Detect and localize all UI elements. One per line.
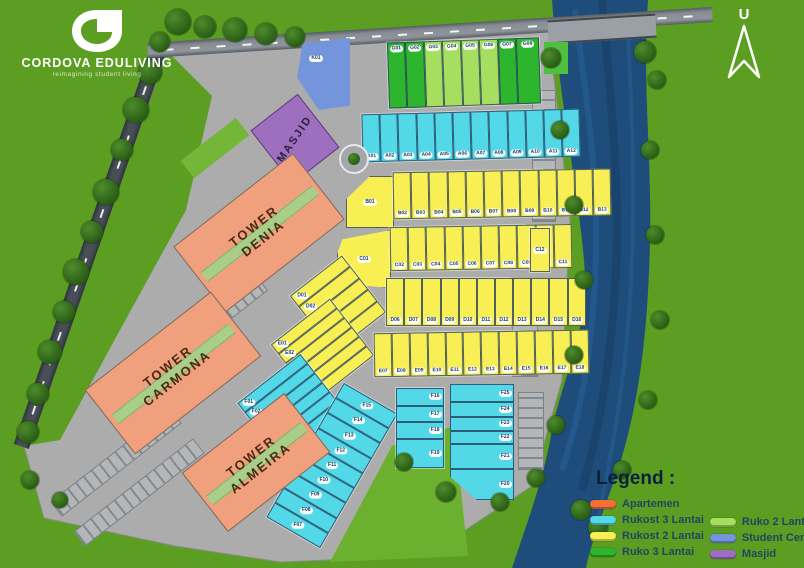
tree-icon [395,453,413,471]
tree-icon [17,421,39,443]
unit-label: B10 [541,207,554,214]
legend-label: Rukost 3 Lantai [622,514,704,526]
unit-label: E16 [538,365,551,372]
tree-icon [21,471,39,489]
unit-E14[interactable]: E14 [499,331,518,375]
unit-label: D11 [479,317,492,324]
rukost-f-col2: F25F24F23F22F21F20 [450,384,514,500]
north-arrow-icon [724,23,764,81]
legend-swatch-icon [710,534,736,543]
unit-label: D13 [516,317,529,324]
rukost-e-row: E07E08E09E10E11E12E13E14E15E16E17E18 [374,331,521,378]
unit-label: F24 [499,406,512,413]
unit-C06[interactable]: C06 [462,226,481,270]
unit-label: E18 [573,364,586,371]
unit-A02[interactable]: A02 [380,113,399,161]
unit-label: E12 [466,366,479,373]
unit-F21[interactable]: F21 [450,444,514,469]
unit-label: B02 [396,210,409,217]
tree-icon [38,340,62,364]
unit-C04[interactable]: C04 [426,226,445,270]
unit-A09[interactable]: A09 [507,110,526,158]
unit-label: B08 [505,208,518,215]
unit-label: A08 [492,149,505,156]
unit-label: C01 [357,256,370,263]
unit-B02[interactable]: B02 [393,172,412,219]
unit-label: B01 [363,199,376,206]
unit-label: E09 [413,367,426,374]
legend-swatch-icon [590,500,616,509]
unit-label: A06 [456,150,469,157]
unit-A03[interactable]: A03 [398,113,417,161]
tree-icon [81,221,103,243]
unit-E15[interactable]: E15 [517,330,536,374]
tree-icon [194,16,216,38]
legend-title: Legend : [596,468,802,490]
unit-label: C04 [429,261,442,268]
unit-B07[interactable]: B07 [484,170,503,217]
legend-swatch-icon [590,548,616,557]
tree-icon [648,71,666,89]
tower-label: TOWER CARMONA [132,336,215,410]
legend-swatch-icon [710,550,736,559]
unit-E13[interactable]: E13 [481,331,500,375]
unit-label: E07 [377,368,390,375]
unit-label: B07 [487,208,500,215]
unit-label: E08 [395,367,408,374]
brand-tagline: reimagining student living [12,71,182,78]
unit-label: F17 [429,411,442,418]
unit-label: E13 [484,366,497,373]
legend-item: Rukost 3 Lantai [590,514,704,526]
tree-icon [571,500,591,520]
unit-label: E10 [430,367,443,374]
unit-label: G08 [521,40,535,47]
unit-label: F13 [343,432,356,439]
legend-label: Student Center [742,532,804,544]
legend: Legend : ApartemenRukost 3 LantaiRukost … [590,468,802,560]
unit-label: E11 [448,366,461,373]
unit-label: C05 [447,260,460,267]
unit-label: F01 [242,399,255,406]
unit-label: G02 [408,44,422,51]
roundabout [339,144,369,174]
legend-label: Rukost 2 Lantai [622,530,704,542]
unit-label: F11 [326,462,338,469]
unit-F17[interactable]: F17 [396,406,444,422]
rukost-c-row: C02C03C04C05C06C07C08C09C10C11 [390,225,526,271]
unit-E07[interactable]: E07 [374,333,393,377]
tree-icon [223,18,247,42]
parking-strip [518,392,544,470]
tree-icon [63,259,89,285]
unit-A10[interactable]: A10 [525,110,544,158]
unit-label: F10 [317,477,330,484]
legend-swatch-icon [590,532,616,541]
unit-label: D16 [570,317,583,324]
tree-icon [551,121,569,139]
unit-label: F20 [499,481,512,488]
unit-label: F25 [499,390,512,397]
unit-label: D10 [461,317,474,324]
unit-label: C08 [502,259,515,266]
tree-icon [52,492,68,508]
legend-item: Rukost 2 Lantai [590,530,704,542]
unit-G07[interactable]: G07 [498,38,519,105]
unit-D06[interactable]: D06 [386,278,404,326]
unit-label: E02 [282,350,295,357]
unit-F25[interactable]: F25 [450,384,514,402]
legend-item: Ruko 3 Lantai [590,546,704,558]
unit-E16[interactable]: E16 [534,330,553,374]
tree-icon [285,27,305,47]
unit-D14[interactable]: D14 [531,278,549,326]
compass-label: U [722,6,766,23]
tree-icon [565,196,583,214]
unit-F22[interactable]: F22 [450,431,514,444]
unit-label: G07 [500,41,514,48]
tree-icon [646,226,664,244]
unit-D13[interactable]: D13 [513,278,531,326]
tree-icon [123,97,149,123]
legend-label: Ruko 3 Lantai [622,546,694,558]
tree-icon [491,493,509,511]
unit-label: D09 [443,317,456,324]
unit-D09[interactable]: D09 [441,278,459,326]
unit-label: B06 [468,208,481,215]
unit-label: G01 [389,45,403,52]
unit-label: F15 [360,402,373,409]
unit-G06[interactable]: G06 [479,39,500,106]
tree-icon [527,469,545,487]
tree-icon [575,271,593,289]
unit-E11[interactable]: E11 [445,332,463,376]
unit-label: E17 [555,364,568,371]
unit-C11[interactable]: C11 [553,224,572,268]
unit-A07[interactable]: A07 [470,111,489,159]
tree-icon [641,141,659,159]
unit-label: F12 [334,447,347,454]
unit-label: F09 [308,492,321,499]
unit-label: K01 [309,55,322,62]
unit-G04[interactable]: G04 [442,40,463,107]
tree-icon [547,416,565,434]
unit-label: F19 [429,450,442,457]
unit-B08[interactable]: B08 [502,170,521,217]
unit-label: D07 [407,317,420,324]
tree-icon [93,179,119,205]
unit-A05[interactable]: A05 [434,112,453,160]
unit-D10[interactable]: D10 [459,278,477,326]
legend-column: Ruko 2 LantaiStudent CenterMasjid [710,516,804,560]
unit-label: G05 [463,42,477,49]
unit-label: F08 [300,507,313,514]
unit-G02[interactable]: G02 [405,41,426,108]
tree-icon [53,301,75,323]
unit-label: F23 [499,420,512,427]
unit-label: C12 [533,247,546,254]
unit-label: E14 [502,365,515,372]
unit-label: A03 [401,152,414,159]
unit-label: C06 [465,260,478,267]
tree-icon [541,48,561,68]
unit-label: A07 [474,150,487,157]
rukost-d-row: D06D07D08D09D10D11D12D13D14D15D16 [386,278,510,326]
unit-label: D08 [425,317,438,324]
brand-logo-icon [68,8,126,54]
unit-label: B13 [596,206,609,213]
unit-label: A10 [529,148,542,155]
unit-label: C02 [393,261,406,268]
unit-A04[interactable]: A04 [416,112,435,160]
unit-C08[interactable]: C08 [499,225,518,269]
unit-G01[interactable]: G01 [387,42,408,109]
unit-label: G06 [482,41,496,48]
unit-D08[interactable]: D08 [422,278,440,326]
unit-B13[interactable]: B13 [592,169,611,216]
rukost-b-row: B02B03B04B05B06B07B08B09B10B11B12B13 [393,170,544,220]
unit-F16[interactable]: F16 [396,388,444,406]
unit-label: F21 [499,453,512,460]
unit-label: A12 [565,147,578,154]
unit-label: E01 [275,340,288,347]
legend-item: Masjid [710,548,804,560]
unit-label: A05 [438,151,451,158]
brand-name: CORDOVA EDULIVING [12,56,182,70]
tree-icon [27,383,49,405]
unit-B05[interactable]: B05 [447,171,466,218]
tree-icon [111,139,133,161]
unit-E08[interactable]: E08 [392,333,411,377]
unit-label: G04 [445,43,459,50]
legend-item: Student Center [710,532,804,544]
unit-D07[interactable]: D07 [404,278,422,326]
unit-A08[interactable]: A08 [489,111,508,159]
unit-G05[interactable]: G05 [461,39,482,106]
unit-label: B09 [523,207,536,214]
unit-B09[interactable]: B09 [520,170,539,217]
unit-label: F22 [499,434,512,441]
tree-icon [255,23,277,45]
unit-D12[interactable]: D12 [495,278,513,326]
unit-D11[interactable]: D11 [477,278,495,326]
unit-label: D12 [497,317,510,324]
legend-column: ApartemenRukost 3 LantaiRukost 2 LantaiR… [590,498,704,560]
unit-G03[interactable]: G03 [424,41,445,108]
unit-E09[interactable]: E09 [409,332,428,376]
unit-label: A11 [547,148,560,155]
legend-label: Apartemen [622,498,679,510]
unit-label: G03 [426,43,440,50]
tower-label: TOWER ALMEIRA [218,428,294,497]
ruko-top-row: G01G02G03G04G05G06G07G08 [387,37,541,108]
unit-G08[interactable]: G08 [516,37,541,104]
unit-B04[interactable]: B04 [429,171,448,218]
unit-label: F16 [429,393,442,400]
unit-label: E15 [520,365,533,372]
compass: U [722,6,766,86]
unit-F18[interactable]: F18 [396,422,444,438]
unit-label: F14 [352,417,365,424]
site-plan-canvas: G01G02G03G04G05G06G07G08 A01A02A03A04A05… [0,0,804,568]
unit-label: B03 [414,209,427,216]
unit-label: C11 [556,259,569,266]
unit-A06[interactable]: A06 [452,112,471,160]
unit-label: B04 [432,209,445,216]
unit-label: A04 [419,151,432,158]
unit-C02[interactable]: C02 [390,227,409,271]
unit-label: B05 [450,209,463,216]
unit-label: D15 [552,317,565,324]
tree-icon [565,346,583,364]
unit-label: F07 [291,522,304,529]
tree-icon [436,482,456,502]
unit-B03[interactable]: B03 [411,172,430,219]
unit-D15[interactable]: D15 [549,278,567,326]
unit-B06[interactable]: B06 [465,171,484,218]
unit-E10[interactable]: E10 [427,332,446,376]
unit-label: A02 [383,152,396,159]
legend-swatch-icon [590,516,616,525]
rukost-a-row: A01A02A03A04A05A06A07A08A09A10A11A12 [361,110,543,163]
unit-label: D01 [295,293,308,300]
unit-label: C03 [411,261,424,268]
unit-label: A09 [510,149,523,156]
legend-item: Apartemen [590,498,704,510]
legend-label: Ruko 2 Lantai [742,516,804,528]
unit-C05[interactable]: C05 [444,226,463,270]
tree-icon [639,391,657,409]
unit-C03[interactable]: C03 [408,227,427,271]
tree-icon [634,41,656,63]
unit-label: C07 [484,260,497,267]
legend-label: Masjid [742,548,776,560]
legend-item: Ruko 2 Lantai [710,516,804,528]
unit-label: D06 [389,317,402,324]
tree-icon [651,311,669,329]
unit-label: D14 [534,317,547,324]
unit-label: F18 [429,427,442,434]
unit-C12[interactable]: C12 [530,228,550,272]
unit-F24[interactable]: F24 [450,402,514,417]
unit-E12[interactable]: E12 [463,331,482,375]
unit-C07[interactable]: C07 [481,225,500,269]
legend-swatch-icon [710,518,736,527]
unit-B10[interactable]: B10 [538,169,557,216]
unit-F23[interactable]: F23 [450,417,514,430]
brand-logo: CORDOVA EDULIVING reimagining student li… [12,8,182,78]
